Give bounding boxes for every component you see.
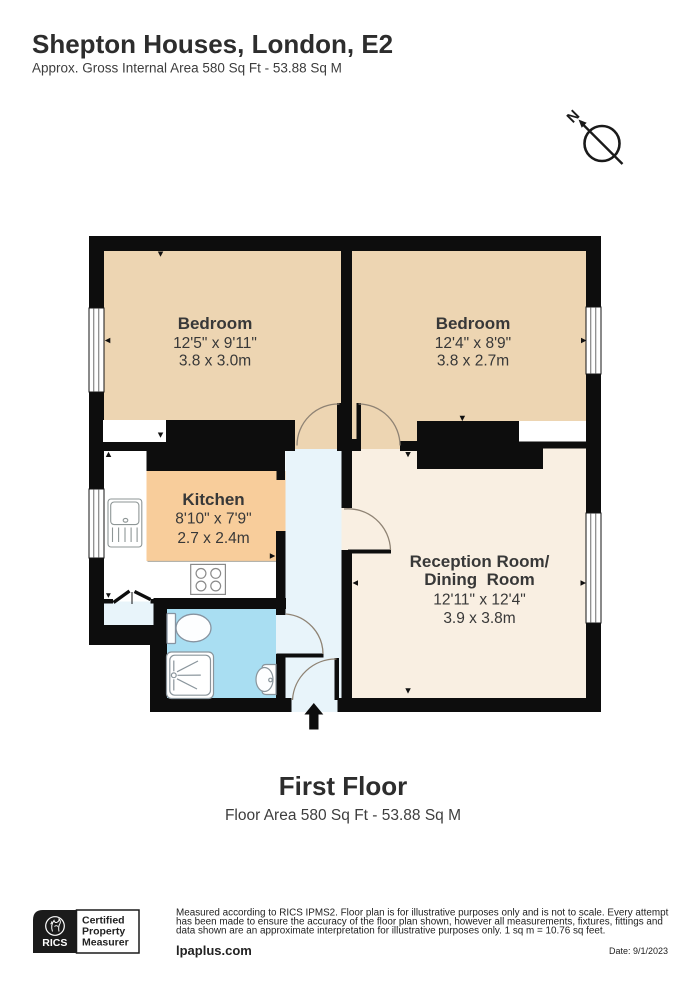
svg-text:12'4" x 8'9": 12'4" x 8'9" — [435, 335, 511, 352]
svg-text:12'11" x 12'4": 12'11" x 12'4" — [433, 592, 525, 609]
svg-text:Floor Area 580 Sq Ft - 53.88 S: Floor Area 580 Sq Ft - 53.88 Sq M — [225, 807, 461, 824]
svg-text:Dining Room: Dining Room — [424, 570, 534, 589]
svg-text:Approx. Gross Internal Area 58: Approx. Gross Internal Area 580 Sq Ft - … — [32, 61, 342, 76]
svg-text:2.7 x 2.4m: 2.7 x 2.4m — [177, 530, 249, 547]
svg-text:data shown are an approximate: data shown are an approximate interpreta… — [176, 926, 605, 937]
svg-text:Bedroom: Bedroom — [436, 314, 511, 333]
svg-text:First Floor: First Floor — [279, 771, 408, 801]
svg-text:Bedroom: Bedroom — [178, 314, 253, 333]
svg-text:RICS: RICS — [42, 937, 67, 949]
svg-text:Reception Room/: Reception Room/ — [410, 552, 550, 571]
svg-text:Date: 9/1/2023: Date: 9/1/2023 — [609, 946, 668, 956]
svg-text:8'10" x 7'9": 8'10" x 7'9" — [175, 511, 251, 528]
svg-text:3.9 x 3.8m: 3.9 x 3.8m — [443, 610, 515, 627]
svg-text:Measurer: Measurer — [82, 937, 129, 949]
svg-text:Shepton Houses, London, E2: Shepton Houses, London, E2 — [32, 29, 393, 59]
svg-text:Kitchen: Kitchen — [182, 490, 244, 509]
svg-text:3.8 x 2.7m: 3.8 x 2.7m — [437, 353, 509, 370]
svg-text:12'5" x 9'11": 12'5" x 9'11" — [173, 335, 257, 352]
svg-text:lpaplus.com: lpaplus.com — [176, 943, 252, 958]
svg-text:3.8 x 3.0m: 3.8 x 3.0m — [179, 353, 251, 370]
